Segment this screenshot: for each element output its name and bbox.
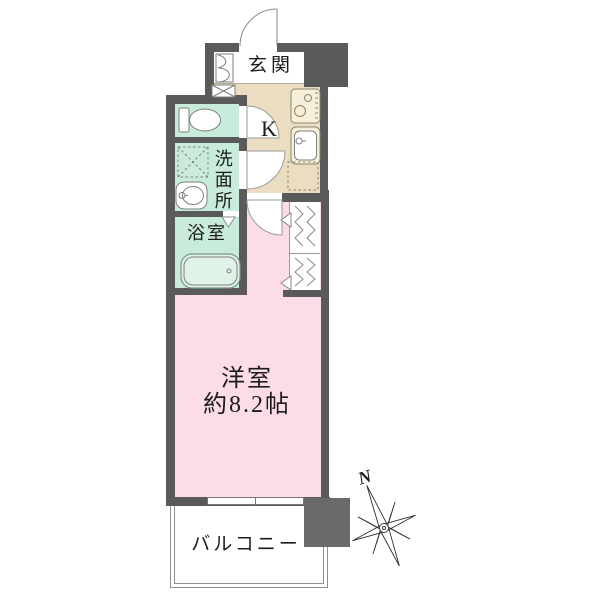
- closet-hanger-icon: [295, 206, 315, 286]
- entrance-label: 玄関: [238, 56, 304, 77]
- washroom-door-icon: [247, 151, 285, 189]
- kitchen-sink-icon: [291, 127, 320, 164]
- bathroom-label: 浴室: [181, 224, 233, 244]
- washroom-label: 洗面所: [212, 146, 232, 214]
- closet-door-marker-bottom: [281, 276, 291, 290]
- vanity-sink-icon: [176, 182, 207, 209]
- balcony-label: バルコニー: [170, 535, 322, 556]
- main-room-name-label: 洋室: [167, 366, 327, 392]
- bathtub-icon: [181, 254, 240, 288]
- kitchen-label: K: [257, 117, 281, 141]
- shoe-box-icon: [212, 85, 235, 97]
- stove-icon: [291, 89, 320, 123]
- compass-rose-icon: [335, 473, 431, 579]
- entrance-door-icon: [240, 9, 277, 46]
- floor-plan: 玄関 K 洗面所 浴室 洋室 約8.2帖 バルコニー N: [0, 0, 600, 600]
- refrigerator-space-icon: [288, 162, 318, 190]
- toilet-icon: [179, 108, 221, 132]
- shoe-cabinet-icon: [216, 54, 233, 82]
- main-room-size-label: 約8.2帖: [167, 392, 327, 418]
- washing-machine-space-icon: [178, 147, 208, 177]
- fixtures-layer: [0, 0, 600, 600]
- room-door-icon: [247, 200, 282, 235]
